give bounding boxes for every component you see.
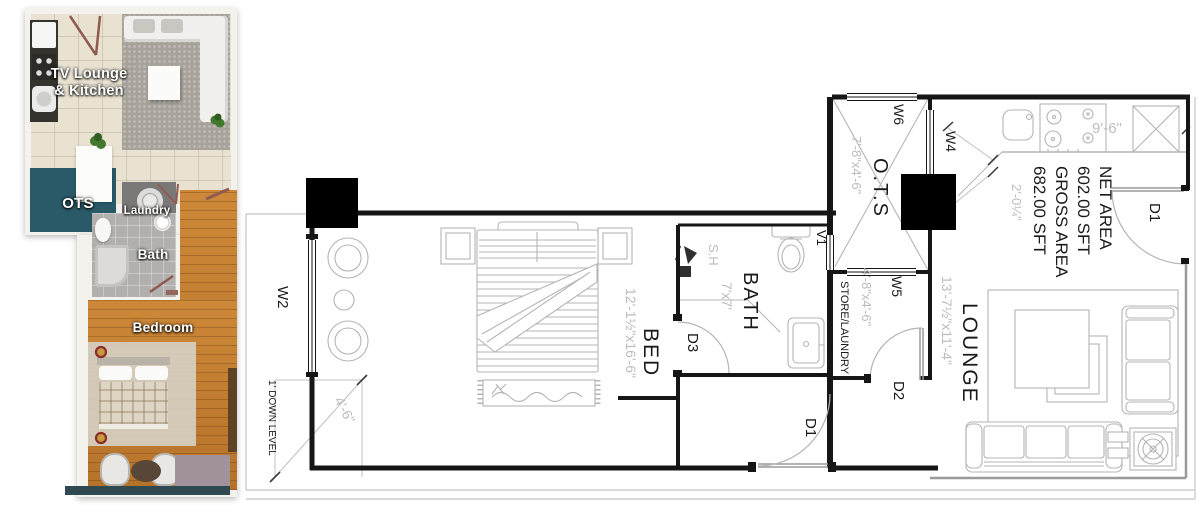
kitchen-counter-plan bbox=[958, 152, 1186, 196]
plant-icon bbox=[90, 114, 225, 150]
vanity-plan bbox=[788, 318, 824, 368]
round-chair bbox=[328, 238, 368, 361]
area-summary: NET AREA 602.00 SFT GROSS AREA 682.00 SF… bbox=[1030, 166, 1115, 278]
note-down-level: 1' DOWN LEVEL bbox=[266, 380, 277, 456]
cad-labels: O.T.S 7'-8"x4'-6" W6 W4 V1 NET AREA 602.… bbox=[266, 104, 1163, 456]
door-label-d3: D3 bbox=[684, 333, 701, 352]
room-label-store: STORE/LAUNDRY bbox=[838, 281, 850, 375]
room-label-bath: BATH bbox=[739, 272, 761, 332]
label-tv-lounge-line2: & Kitchen bbox=[44, 83, 134, 100]
kitchen-sink-icon bbox=[1003, 110, 1033, 140]
area-gross-value: 682.00 SFT bbox=[1030, 166, 1049, 255]
label-ots: OTS bbox=[58, 195, 98, 212]
floorplan-sheet: TV Lounge & Kitchen OTS Laundry Bath Bed… bbox=[0, 0, 1200, 512]
label-bath: Bath bbox=[123, 247, 183, 262]
sofa-two-seat-plan bbox=[1122, 306, 1178, 414]
label-tv-lounge: TV Lounge & Kitchen bbox=[44, 66, 134, 100]
area-net-label: NET AREA bbox=[1096, 166, 1115, 250]
window-label-w6: W6 bbox=[891, 104, 907, 125]
toilet-plan bbox=[772, 224, 810, 272]
door-d1-bottom bbox=[748, 394, 836, 472]
vent-label-v1: V1 bbox=[814, 230, 829, 246]
door-d1-top bbox=[1112, 185, 1189, 264]
coffee-table-plan bbox=[1015, 310, 1089, 388]
room-dim-store: 4'-8"x4'-6" bbox=[859, 268, 874, 327]
room-label-ots: O.T.S bbox=[869, 158, 891, 218]
redaction-square-left bbox=[306, 178, 358, 228]
room-label-lounge: LOUNGE bbox=[958, 303, 981, 404]
room-dim-bed: 12'-1½"x16'-6" bbox=[623, 288, 639, 378]
area-gross-label: GROSS AREA bbox=[1052, 166, 1071, 278]
window-label-w4: W4 bbox=[943, 131, 959, 152]
area-net-value: 602.00 SFT bbox=[1074, 166, 1093, 255]
redaction-square-right bbox=[901, 174, 956, 230]
bedroom-rug-plan bbox=[480, 380, 598, 406]
window-w2 bbox=[306, 234, 318, 377]
door-label-d2: D2 bbox=[890, 381, 907, 400]
room-dim-ots: 7'-8"x4'-6" bbox=[849, 136, 864, 195]
window-label-w2: W2 bbox=[274, 286, 291, 309]
dim-kitchen-counter: 9'-6" bbox=[1092, 120, 1122, 137]
label-tv-lounge-line1: TV Lounge bbox=[44, 66, 134, 83]
sofa-three-seat-plan bbox=[966, 422, 1122, 472]
label-laundry: Laundry bbox=[117, 205, 177, 217]
label-bedroom: Bedroom bbox=[123, 320, 203, 335]
door-label-d1-bottom: D1 bbox=[802, 418, 819, 437]
room-dim-lounge: 13'-7½"x11'-4" bbox=[939, 276, 955, 365]
window-label-w5: W5 bbox=[889, 276, 905, 297]
dim-counter-depth: 2'-0¼" bbox=[1009, 184, 1024, 221]
shower-label: S.H bbox=[706, 244, 721, 266]
door-d2 bbox=[864, 328, 923, 383]
room-label-bed: BED bbox=[639, 328, 662, 377]
bed-plan bbox=[441, 222, 632, 372]
room-dim-bath: 7'x7' bbox=[719, 282, 735, 310]
bedside-lamp-icon bbox=[96, 347, 106, 443]
door-label-d1-top: D1 bbox=[1146, 203, 1163, 222]
window-w6 bbox=[847, 92, 917, 102]
fridge-icon bbox=[1133, 106, 1190, 152]
